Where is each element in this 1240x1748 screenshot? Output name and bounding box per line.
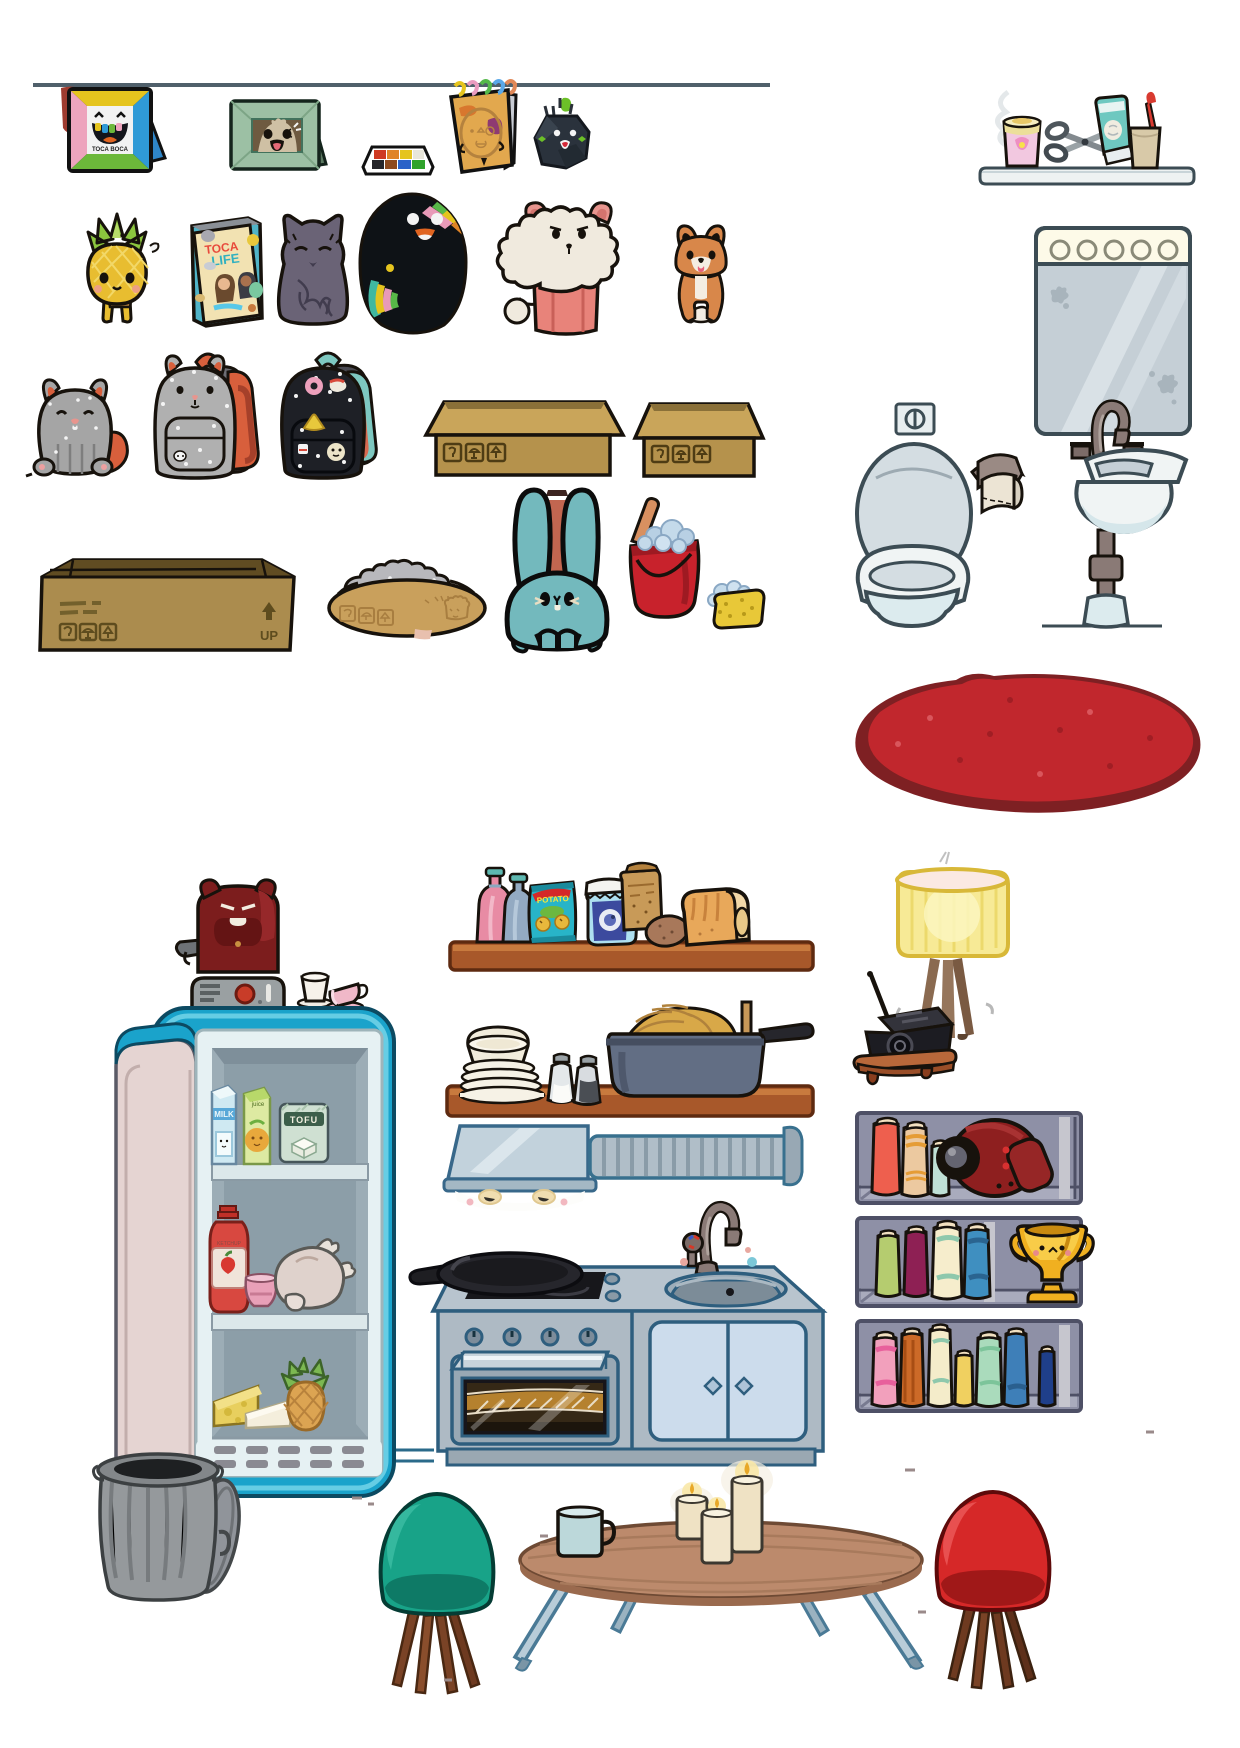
svg-text:TOFU: TOFU: [290, 1115, 318, 1125]
svg-text:TOCA BOCA: TOCA BOCA: [92, 147, 129, 153]
svg-text:UP: UP: [260, 628, 278, 643]
svg-text:juice: juice: [251, 1102, 265, 1108]
svg-text:KETCHUP: KETCHUP: [217, 1241, 242, 1247]
svg-text:MILK: MILK: [214, 1110, 234, 1119]
